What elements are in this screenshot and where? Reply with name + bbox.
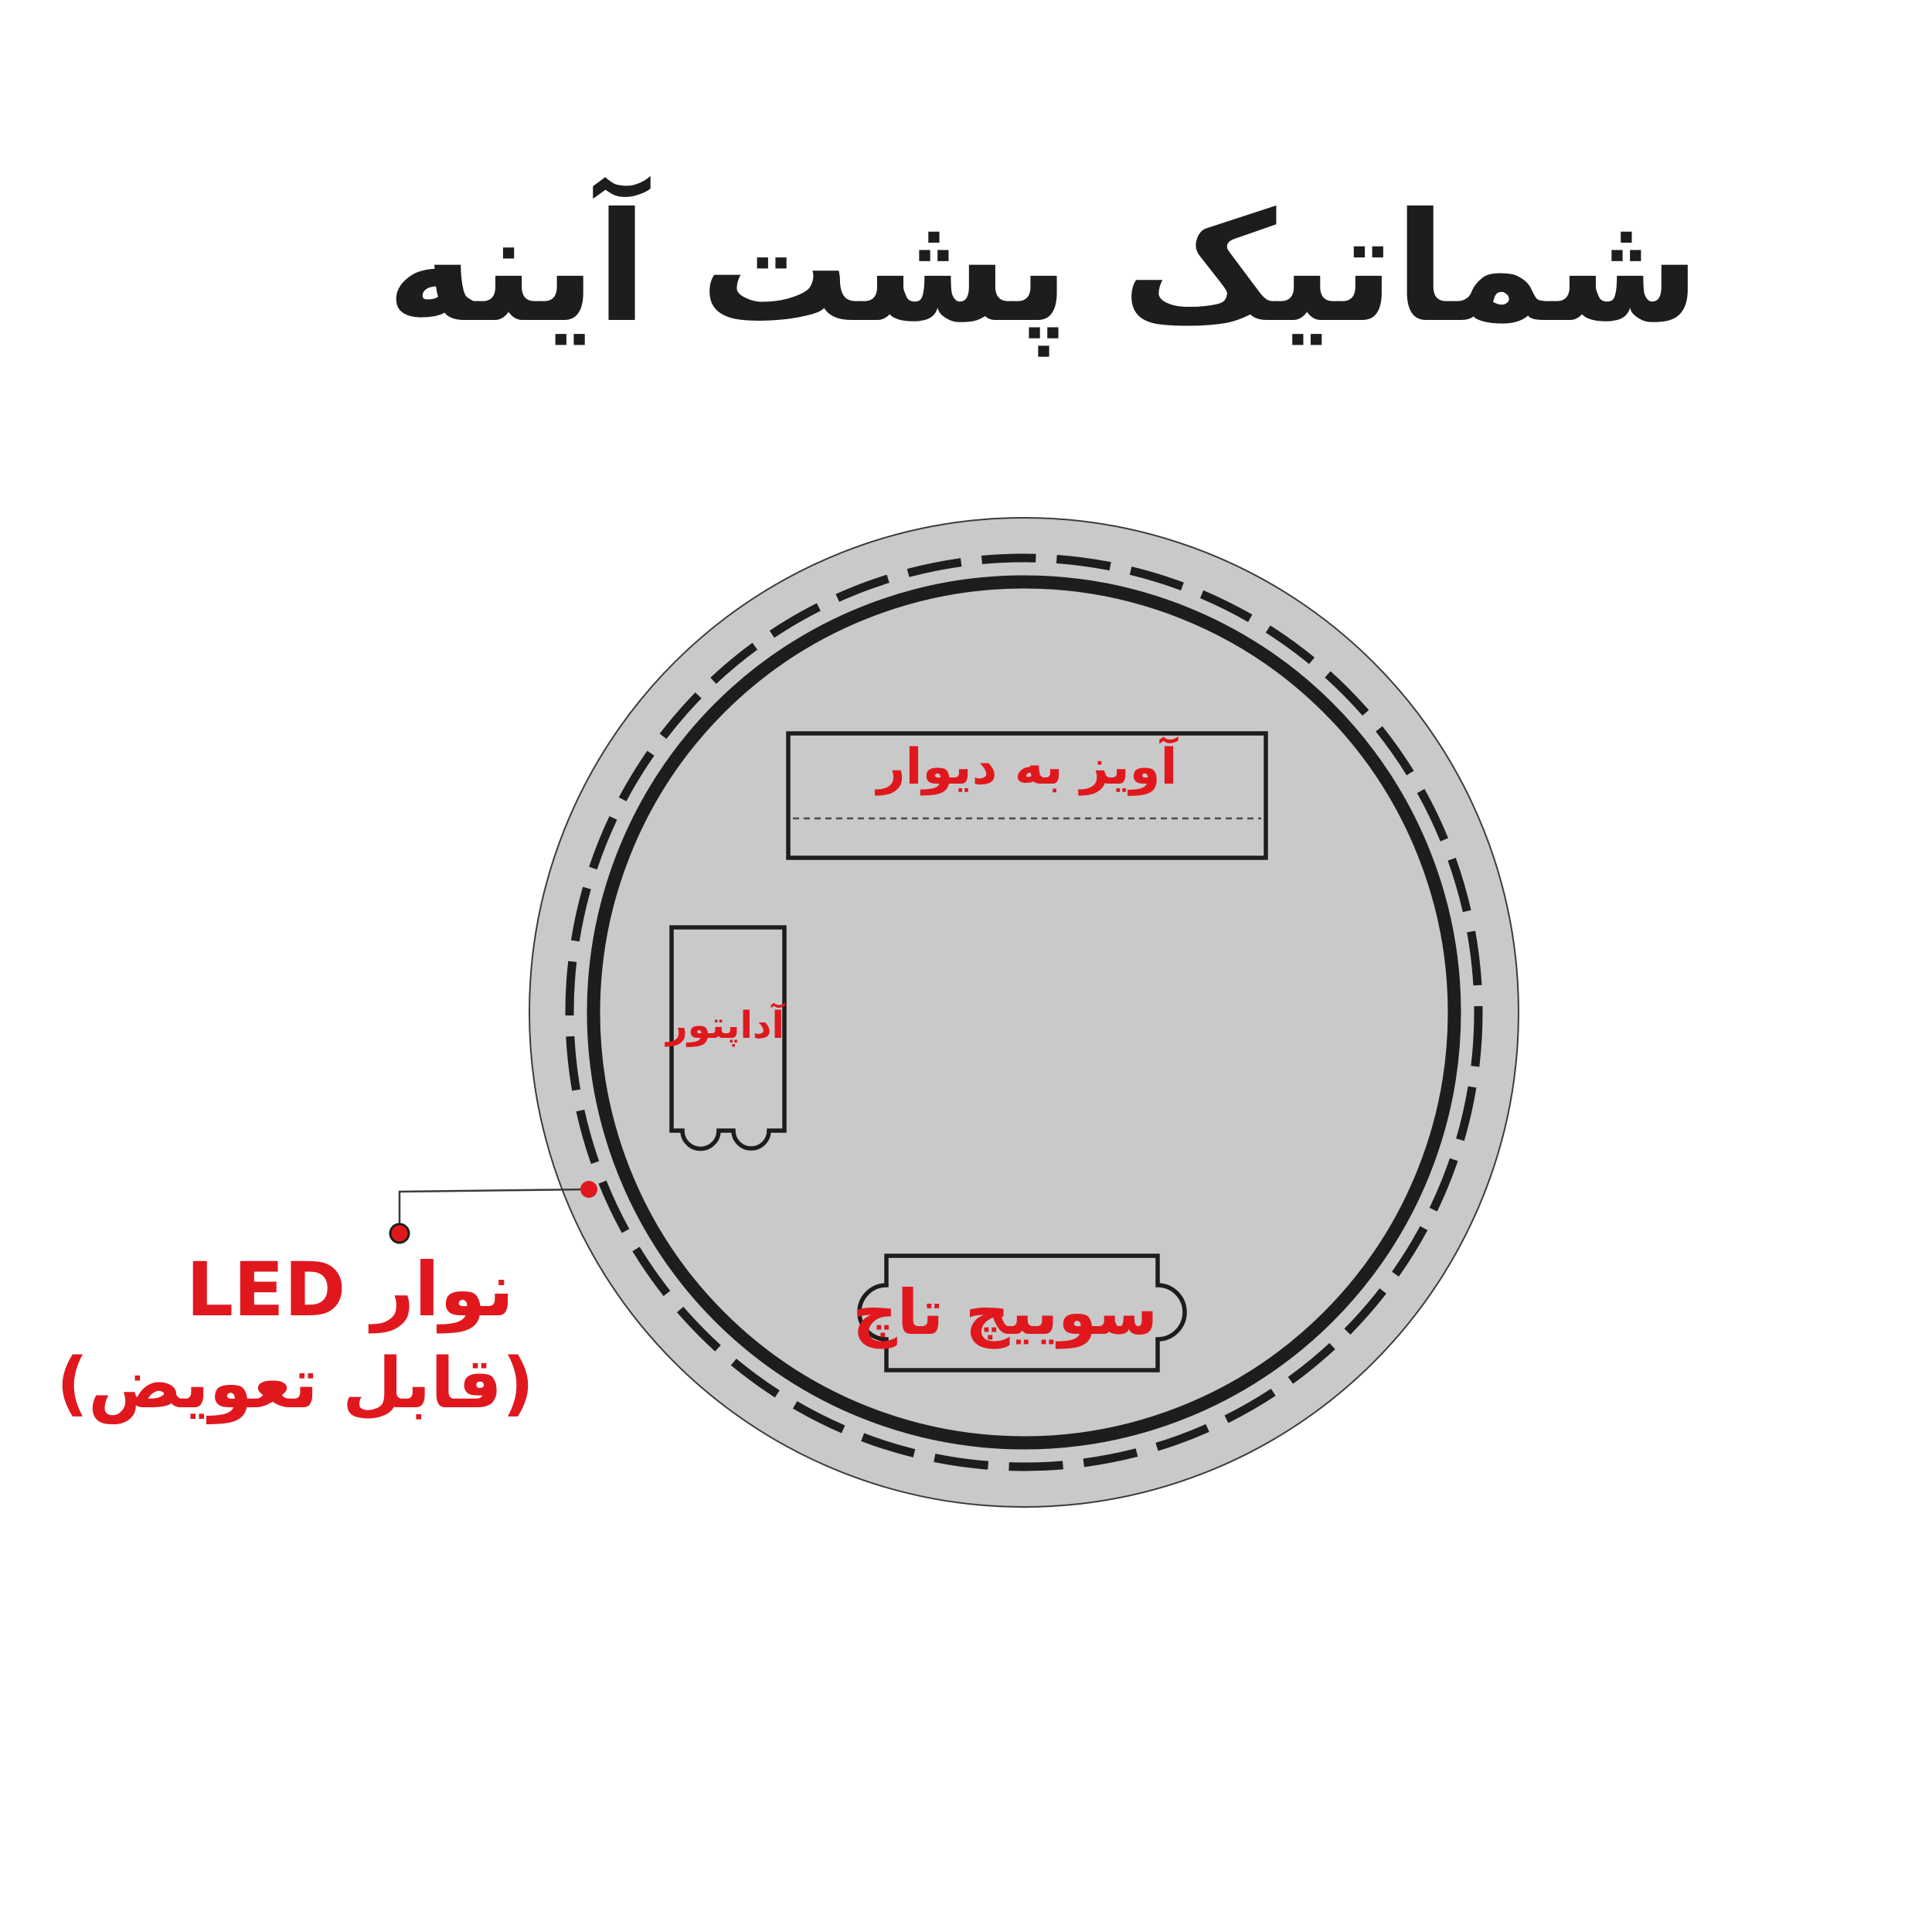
led-strip-label-line1: نوار LED	[118, 1253, 582, 1327]
mirror-back-schematic-page: شماتیک پشت آینه آویز به دیوار آداپتور سو…	[0, 0, 1932, 1932]
mirror-back-diagram	[0, 0, 1932, 1932]
led-strip-label-line2: (قابل تعویض)	[70, 1349, 534, 1419]
adapter-label: آداپتور	[672, 1007, 784, 1044]
led-callout-dot-strip-end	[580, 1181, 597, 1198]
touch-switch-label: سوییچ تاچ	[886, 1282, 1158, 1344]
led-callout-line	[400, 1189, 589, 1226]
wall-hanger-label: آویز به دیوار	[788, 743, 1266, 792]
led-callout-dot-label-end	[390, 1224, 409, 1243]
